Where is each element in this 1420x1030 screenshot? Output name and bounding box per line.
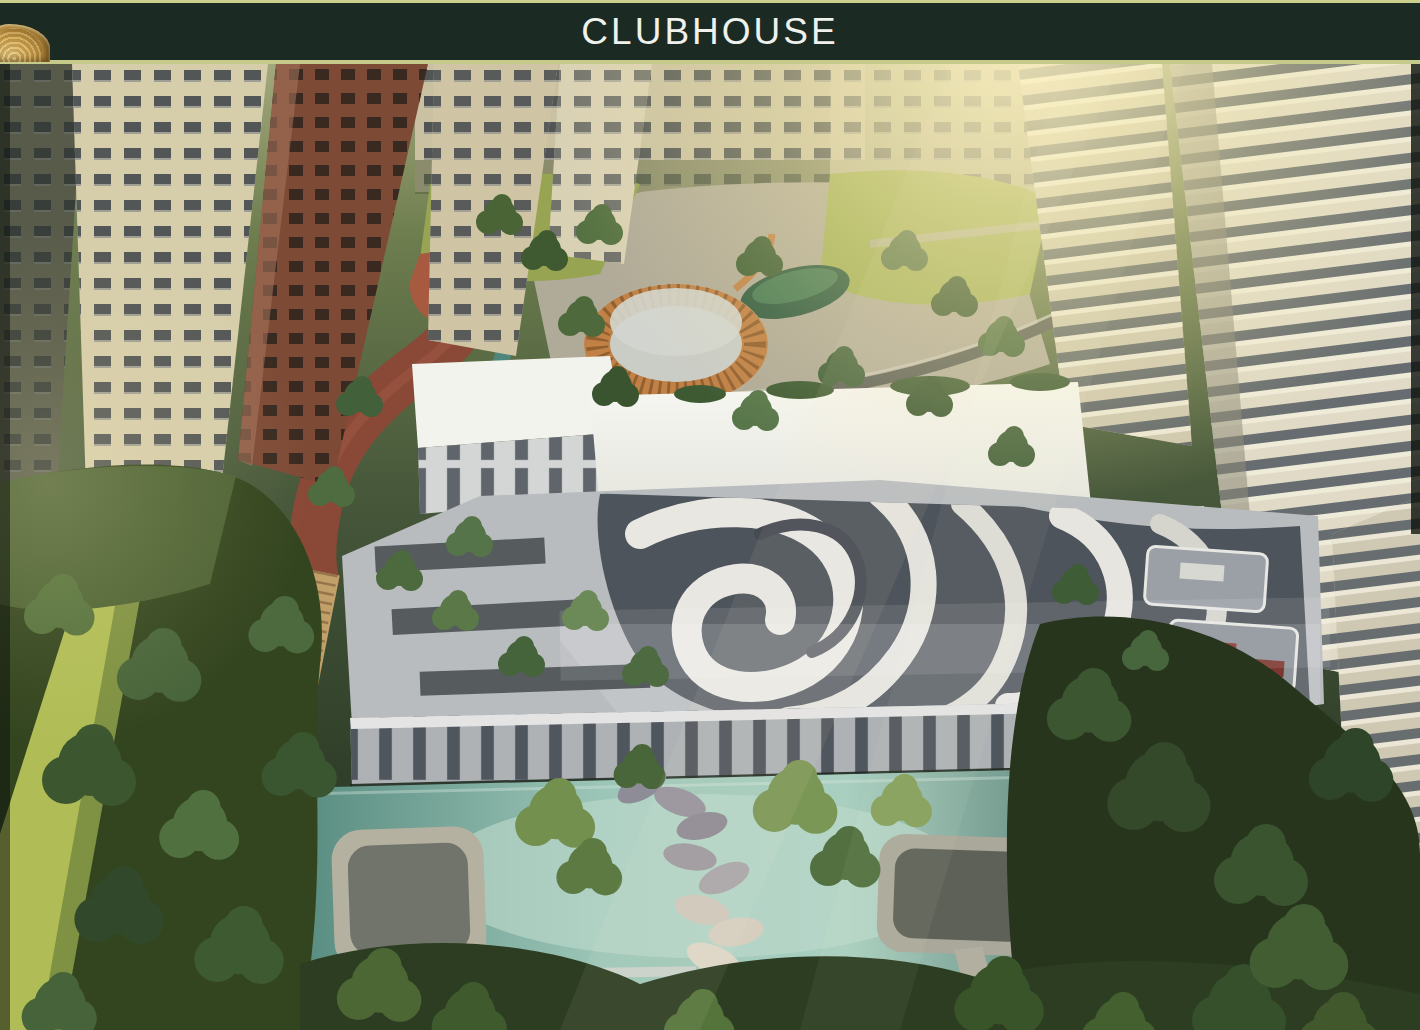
page-title: CLUBHOUSE bbox=[0, 3, 1420, 60]
left-edge-shade bbox=[0, 64, 10, 1030]
brochure-page: CLUBHOUSE bbox=[0, 0, 1420, 1030]
title-banner: CLUBHOUSE bbox=[0, 0, 1420, 64]
aerial-render bbox=[0, 64, 1420, 1030]
banner-bottom-trim bbox=[0, 60, 1420, 64]
right-edge-shade bbox=[1411, 64, 1420, 534]
